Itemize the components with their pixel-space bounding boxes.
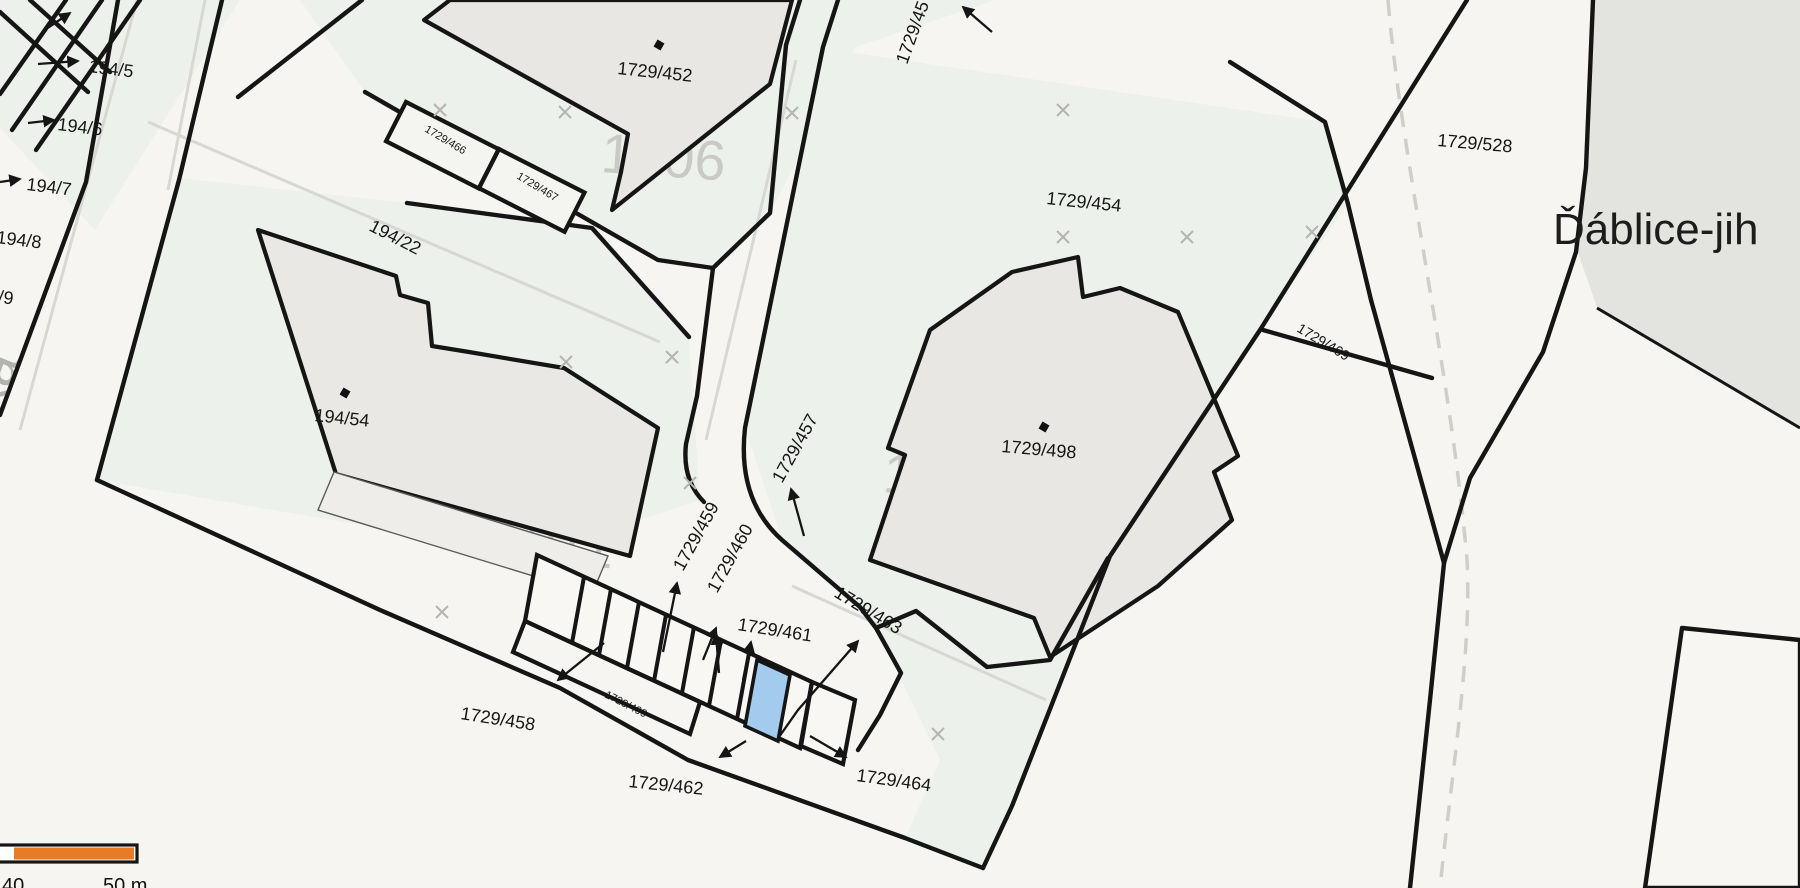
- parcel-label-194-7: 194/7: [26, 174, 73, 199]
- parcel-label-1729-459: 1729/459: [669, 499, 723, 574]
- parcel-bottom-right: [1645, 628, 1800, 888]
- map-scale-bar: 40 50 m: [0, 845, 147, 888]
- cadastral-map-viewport[interactable]: 1006 1011 1033 Ďáblická: [0, 0, 1800, 888]
- scale-tick-50: 50 m: [103, 875, 147, 888]
- area-name-label: Ďáblice-jih: [1553, 205, 1758, 254]
- parcel-label-1729-461: 1729/461: [736, 614, 813, 645]
- parcel-label-1729-458: 1729/458: [459, 703, 536, 734]
- parcel-label-194-9: 194/9: [0, 283, 15, 308]
- cadastral-map-canvas[interactable]: 1006 1011 1033 Ďáblická: [0, 0, 1800, 888]
- scale-bar-segment: [14, 848, 134, 860]
- parcel-label-1729-460: 1729/460: [703, 521, 757, 596]
- parcel-label-1729-464: 1729/464: [855, 765, 932, 795]
- parcel-label-1729-462: 1729/462: [628, 771, 705, 799]
- strip-parcel-band: [513, 555, 855, 764]
- parcel-label-194-8: 194/8: [0, 227, 43, 252]
- parcel-label-1729-528: 1729/528: [1437, 130, 1514, 156]
- scale-tick-40: 40: [2, 875, 24, 888]
